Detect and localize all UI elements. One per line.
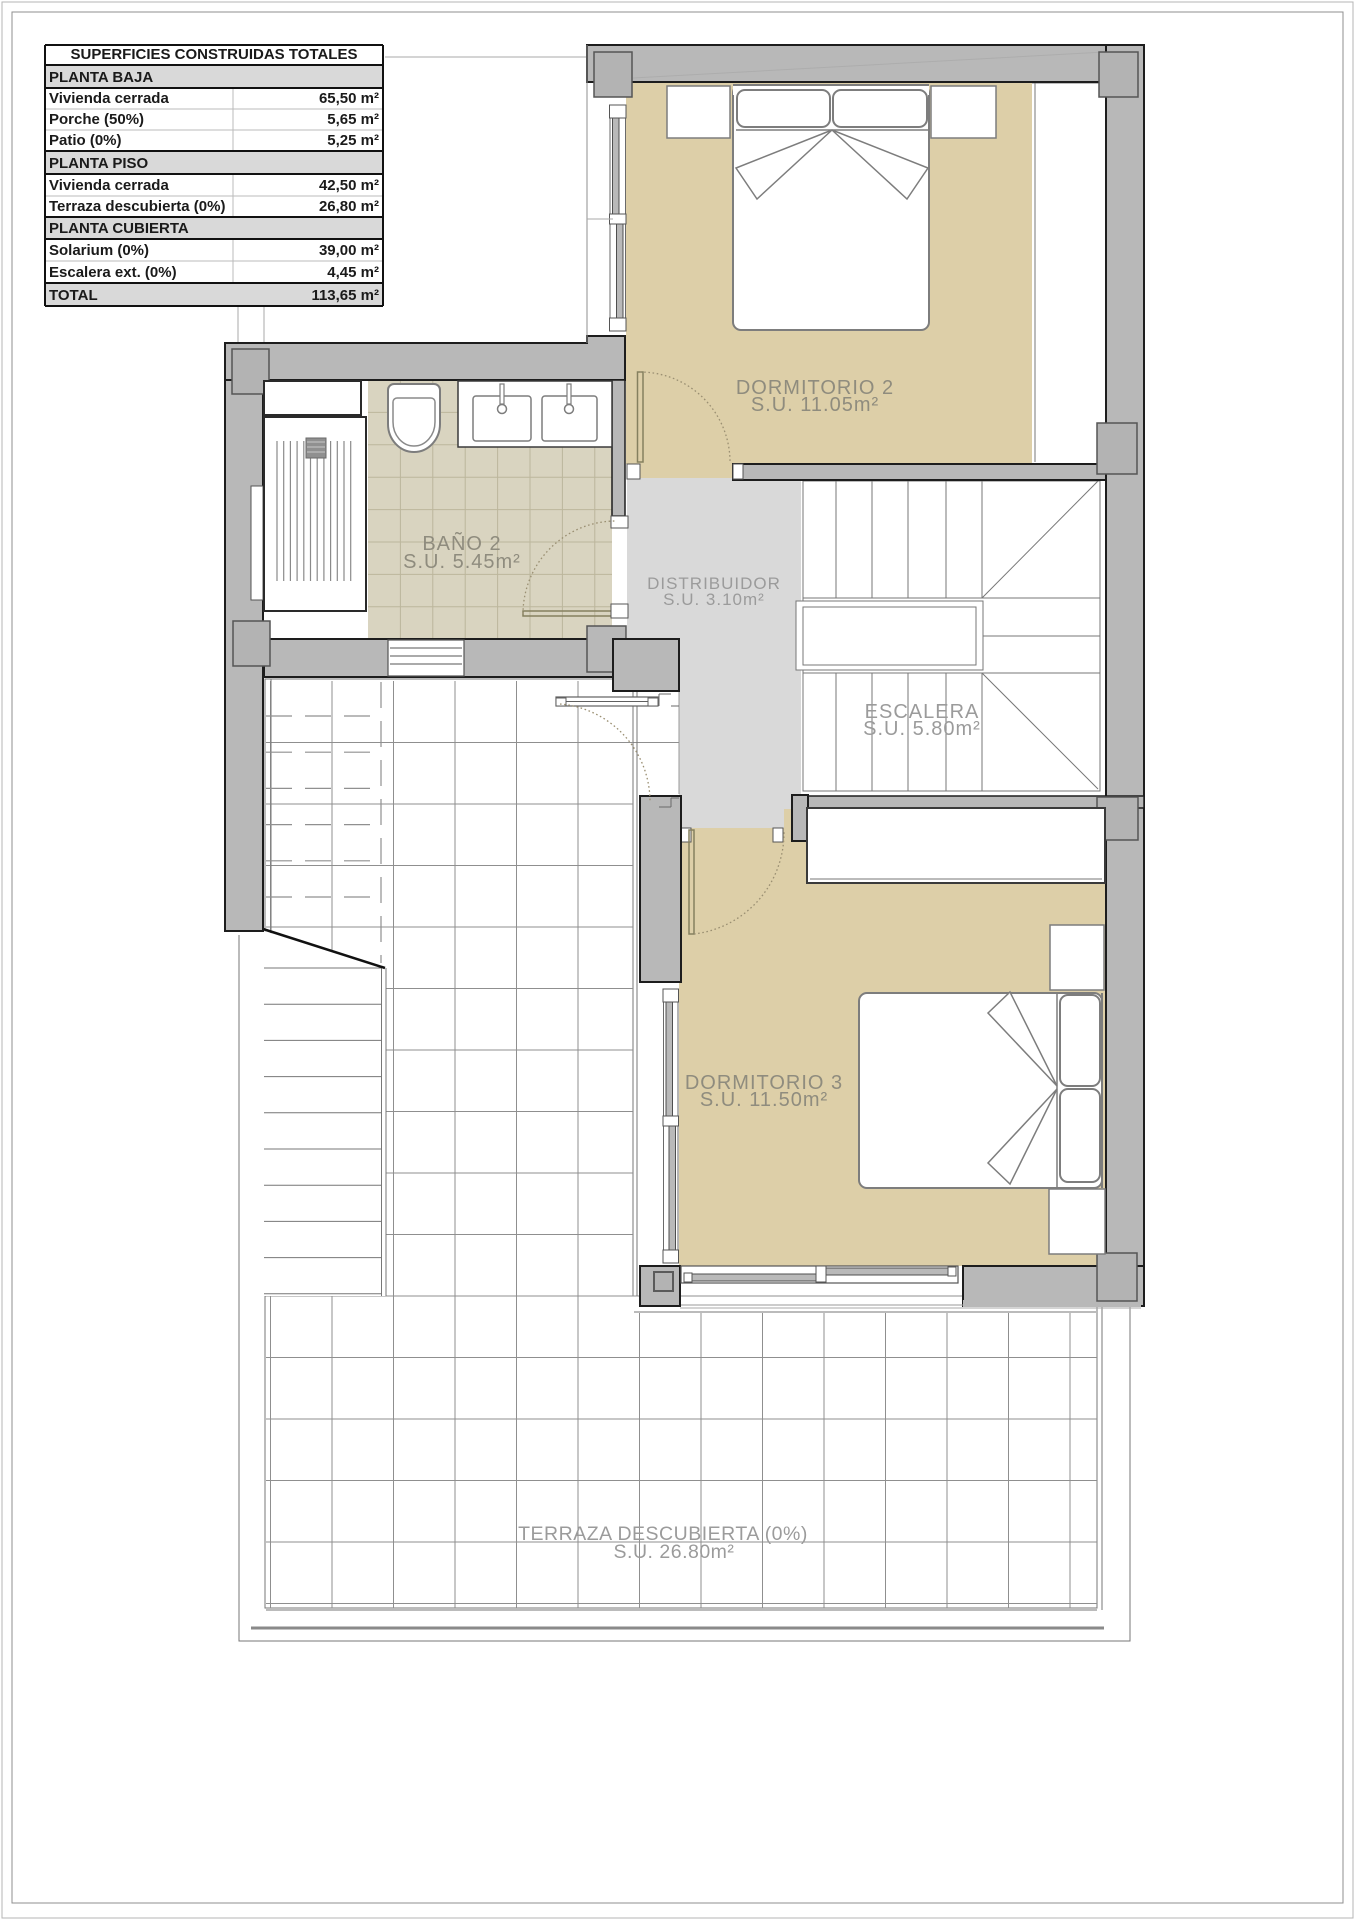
- svg-text:5,25 m²: 5,25 m²: [327, 132, 379, 149]
- svg-text:65,50 m²: 65,50 m²: [319, 90, 379, 107]
- svg-text:S.U. 5.45m²: S.U. 5.45m²: [403, 551, 521, 573]
- svg-text:Solarium (0%): Solarium (0%): [49, 242, 149, 259]
- svg-text:PLANTA CUBIERTA: PLANTA CUBIERTA: [49, 220, 189, 237]
- svg-text:Vivienda cerrada: Vivienda cerrada: [49, 177, 169, 194]
- svg-text:5,65 m²: 5,65 m²: [327, 111, 379, 128]
- svg-text:42,50 m²: 42,50 m²: [319, 177, 379, 194]
- svg-text:26,80 m²: 26,80 m²: [319, 198, 379, 215]
- svg-text:S.U. 5.80m²: S.U. 5.80m²: [863, 718, 981, 740]
- svg-text:Porche (50%): Porche (50%): [49, 111, 144, 128]
- svg-text:Vivienda cerrada: Vivienda cerrada: [49, 90, 169, 107]
- svg-text:Terraza descubierta (0%): Terraza descubierta (0%): [49, 198, 225, 215]
- svg-text:4,45 m²: 4,45 m²: [327, 264, 379, 281]
- svg-text:S.U. 3.10m²: S.U. 3.10m²: [663, 590, 765, 609]
- svg-text:39,00 m²: 39,00 m²: [319, 242, 379, 259]
- svg-text:PLANTA PISO: PLANTA PISO: [49, 155, 149, 172]
- svg-text:TOTAL: TOTAL: [49, 287, 98, 304]
- svg-text:S.U. 26.80m²: S.U. 26.80m²: [614, 1541, 735, 1563]
- svg-text:SUPERFICIES CONSTRUIDAS TOTALE: SUPERFICIES CONSTRUIDAS TOTALES: [71, 46, 358, 63]
- svg-text:Escalera ext. (0%): Escalera ext. (0%): [49, 264, 177, 281]
- svg-text:PLANTA BAJA: PLANTA BAJA: [49, 69, 153, 86]
- svg-text:S.U. 11.05m²: S.U. 11.05m²: [751, 394, 879, 416]
- svg-text:S.U. 11.50m²: S.U. 11.50m²: [700, 1089, 828, 1111]
- svg-text:Patio (0%): Patio (0%): [49, 132, 122, 149]
- svg-text:113,65 m²: 113,65 m²: [311, 287, 379, 304]
